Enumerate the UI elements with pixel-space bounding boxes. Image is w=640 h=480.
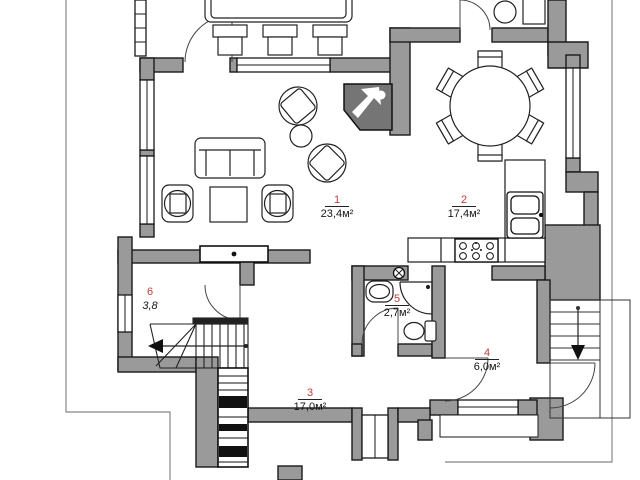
room-area: 17,4м²	[434, 208, 494, 221]
swivel-chair-1	[271, 79, 325, 133]
room-area: 3,8	[120, 300, 180, 313]
room-area: 6,0м²	[457, 361, 517, 374]
room-label-dining-kitchen: 2 17,4м²	[434, 190, 494, 221]
vent-duct	[394, 268, 405, 279]
room-area: 23,4м²	[307, 208, 367, 221]
room-number: 4	[475, 347, 499, 360]
dining-table	[436, 51, 543, 161]
coffee-table	[210, 187, 247, 222]
room-label-hall: 3 17,0м²	[280, 383, 340, 414]
stair-hall-door	[205, 285, 240, 320]
room-area: 2,7м²	[367, 307, 427, 320]
room-number: 5	[385, 293, 409, 306]
armchair-left	[162, 185, 193, 222]
room-label-living-room: 1 23,4м²	[307, 190, 367, 221]
terrace-chairs	[213, 25, 347, 55]
sofa	[195, 138, 265, 178]
armchair-right	[262, 185, 293, 222]
tv-console	[200, 246, 268, 262]
kitchen-sink	[507, 192, 543, 238]
toilet	[404, 321, 436, 341]
stove	[455, 239, 498, 262]
room-number: 1	[325, 194, 349, 207]
room-label-entry: 4 6,0м²	[457, 343, 517, 374]
side-table	[290, 125, 312, 147]
terrace-corner-set	[494, 0, 545, 24]
room-area: 17,0м²	[280, 401, 340, 414]
room-number: 2	[452, 194, 476, 207]
floor-plan-page: 1 23,4м² 2 17,4м² 3 17,0м² 4 6,0м² 5 2,7…	[0, 0, 640, 480]
room-label-bathroom: 5 2,7м²	[367, 289, 427, 320]
room-number: 3	[298, 387, 322, 400]
room-label-stair-hall: 6 3,8	[120, 282, 180, 313]
terrace-table	[205, 0, 352, 22]
room-number: 6	[145, 286, 155, 298]
dining-terrace-door	[460, 0, 490, 30]
basement-stair-shaft	[218, 368, 248, 467]
fireplace	[344, 84, 392, 130]
